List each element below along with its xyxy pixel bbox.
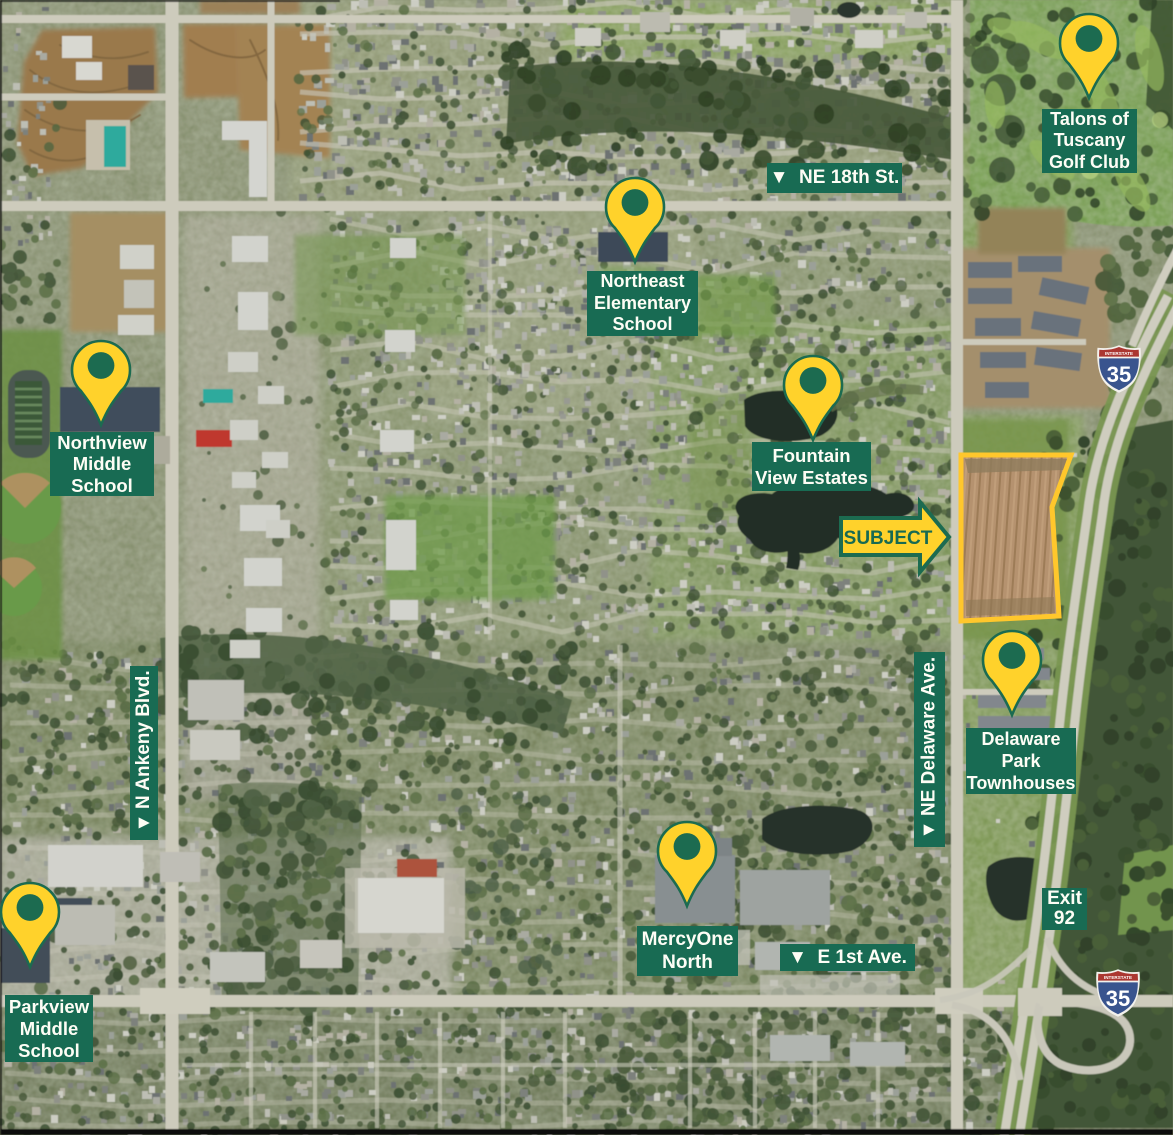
svg-text:INTERSTATE: INTERSTATE (1104, 975, 1132, 980)
svg-text:SUBJECT: SUBJECT (844, 528, 933, 549)
svg-text:35: 35 (1106, 986, 1130, 1011)
svg-text:INTERSTATE: INTERSTATE (1105, 351, 1133, 356)
svg-text:35: 35 (1107, 362, 1131, 387)
